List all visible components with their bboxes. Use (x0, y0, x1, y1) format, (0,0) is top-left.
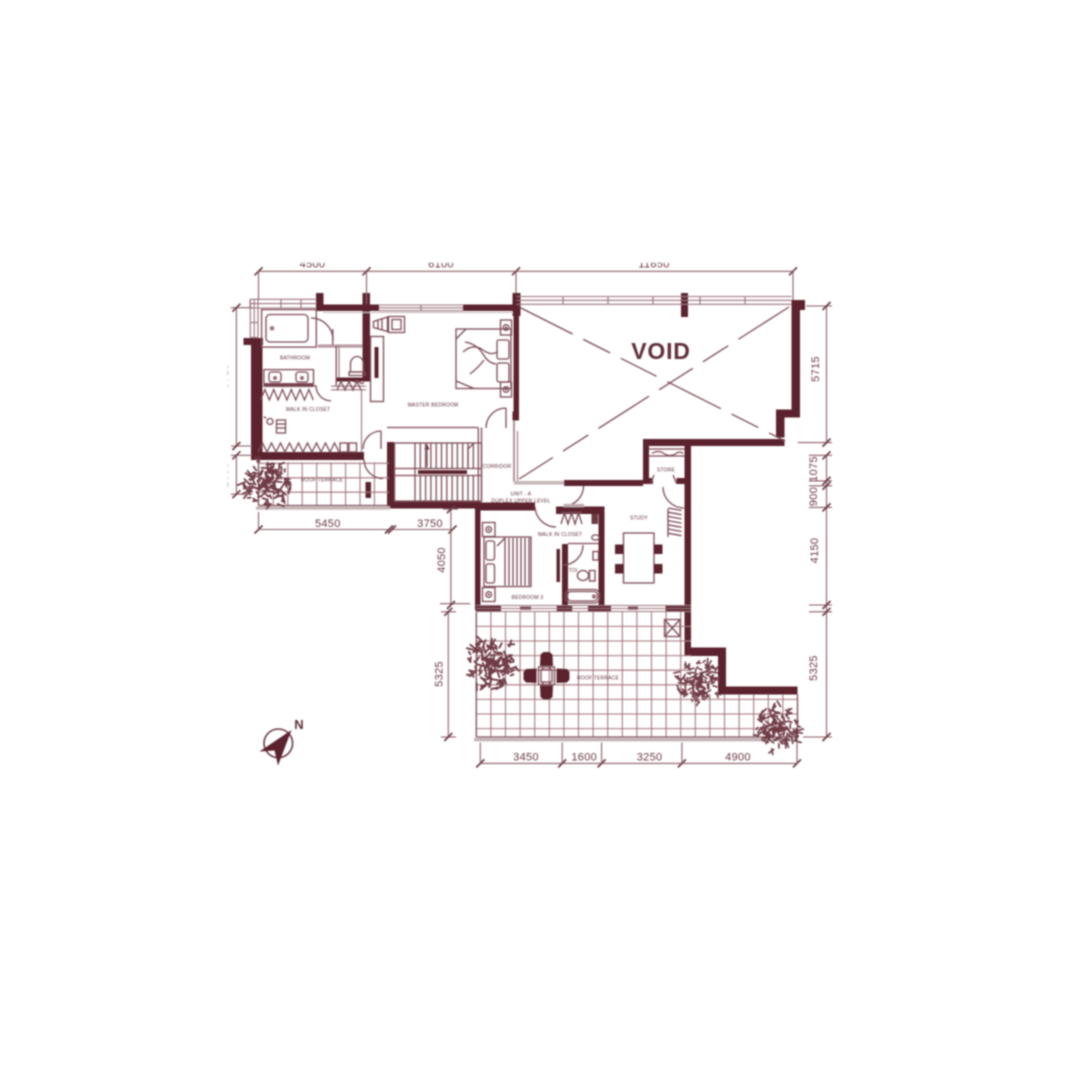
svg-text:3250: 3250 (637, 752, 663, 764)
svg-text:1075: 1075 (808, 456, 820, 482)
svg-text:3750: 3750 (417, 518, 443, 530)
svg-text:4150: 4150 (809, 538, 821, 564)
svg-text:5325: 5325 (434, 661, 446, 687)
svg-text:TOI: TOI (569, 568, 578, 574)
svg-text:DUPLEX UPPER LEVEL: DUPLEX UPPER LEVEL (491, 499, 550, 505)
svg-text:CORRIDOR: CORRIDOR (483, 464, 512, 470)
svg-text:STORE: STORE (657, 468, 676, 474)
svg-text:4900: 4900 (725, 752, 751, 764)
svg-text:1600: 1600 (571, 752, 597, 764)
svg-text:3450: 3450 (513, 752, 539, 764)
svg-text:UNIT - A: UNIT - A (511, 492, 532, 498)
svg-text:5715: 5715 (810, 356, 822, 382)
svg-text:STUDY: STUDY (630, 516, 648, 522)
svg-text:WALK IN CLOSET: WALK IN CLOSET (538, 532, 583, 538)
svg-text:WALK IN CLOSET: WALK IN CLOSET (286, 407, 331, 413)
svg-text:5450: 5450 (315, 518, 341, 530)
svg-text:ROOF TERRACE: ROOF TERRACE (301, 478, 343, 484)
svg-text:900: 900 (808, 487, 820, 506)
svg-text:BEDROOM 3: BEDROOM 3 (512, 595, 544, 601)
svg-text:MASTER BEDROOM: MASTER BEDROOM (408, 403, 459, 409)
svg-text:N: N (294, 717, 303, 732)
svg-text:ROOF TERRACE: ROOF TERRACE (577, 676, 619, 682)
svg-text:5325: 5325 (808, 655, 820, 681)
svg-text:4050: 4050 (436, 547, 448, 573)
svg-text:BATHROOM: BATHROOM (280, 356, 310, 362)
svg-text:VOID: VOID (631, 338, 690, 364)
